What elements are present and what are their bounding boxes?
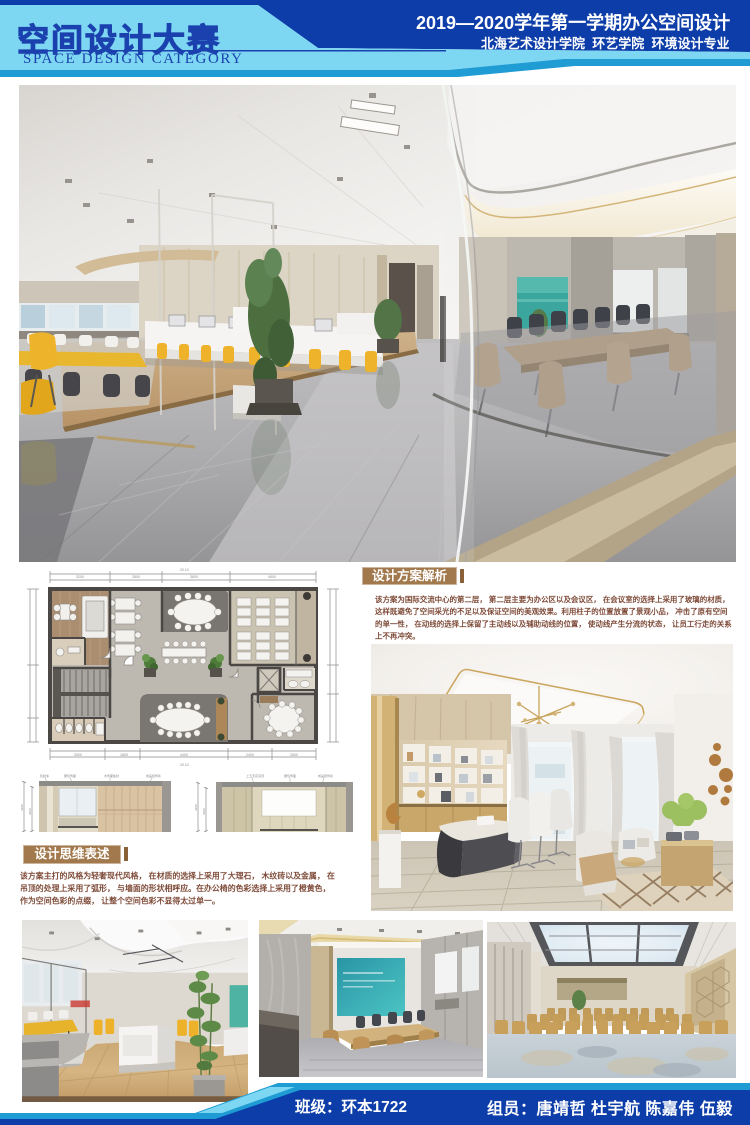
svg-text:3200: 3200 (76, 575, 84, 579)
svg-text:乳胶漆: 乳胶漆 (40, 773, 49, 778)
svg-text:成品装饰条: 成品装饰条 (318, 773, 333, 778)
svg-text:20.10: 20.10 (180, 568, 189, 572)
svg-text:3600: 3600 (28, 808, 32, 815)
svg-text:硬包饰面: 硬包饰面 (64, 773, 76, 778)
svg-text:硬包饰面: 硬包饰面 (284, 773, 296, 778)
svg-text:3000: 3000 (74, 753, 82, 757)
svg-text:木饰面板材: 木饰面板材 (104, 773, 119, 778)
svg-text:4200: 4200 (194, 804, 198, 811)
svg-text:成品装饰条: 成品装饰条 (146, 773, 161, 778)
svg-text:20.10: 20.10 (180, 763, 189, 767)
svg-text:2600: 2600 (290, 753, 298, 757)
svg-text:上五天花吊顶: 上五天花吊顶 (246, 773, 264, 778)
svg-text:4200: 4200 (20, 804, 24, 811)
svg-text:2400: 2400 (246, 753, 254, 757)
svg-text:3600: 3600 (202, 808, 206, 815)
svg-text:1800: 1800 (120, 753, 128, 757)
svg-text:3600: 3600 (190, 575, 198, 579)
svg-text:4600: 4600 (268, 575, 276, 579)
svg-text:4400: 4400 (180, 753, 188, 757)
svg-text:2800: 2800 (132, 575, 140, 579)
